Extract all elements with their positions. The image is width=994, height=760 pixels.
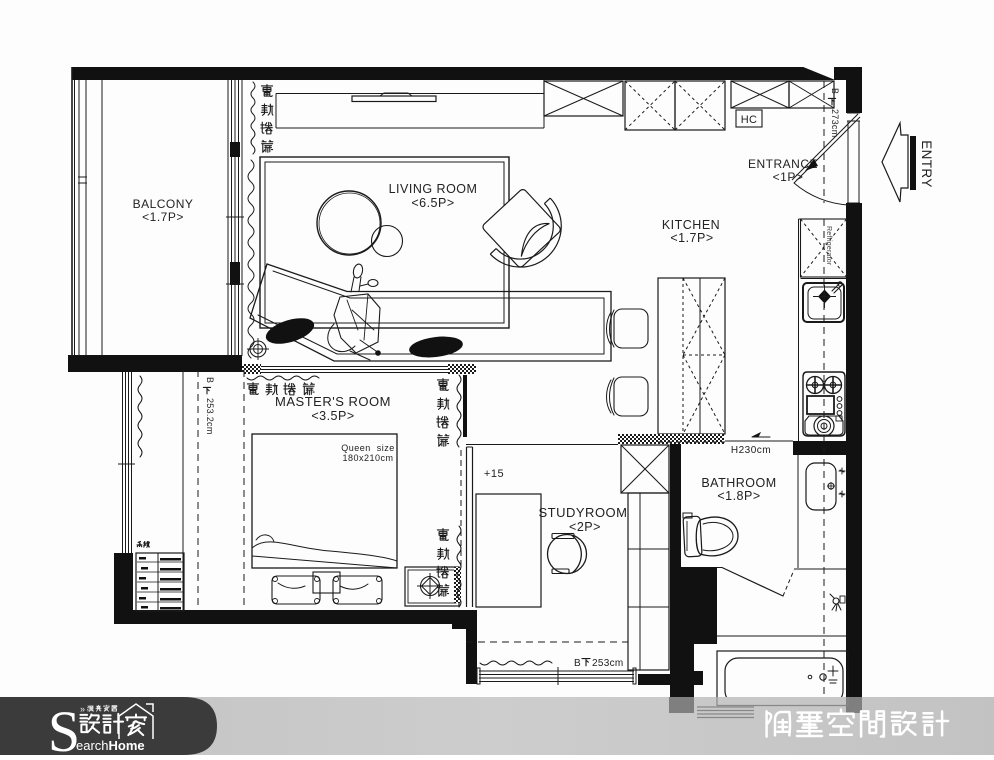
svg-text:KITCHEN: KITCHEN: [662, 218, 720, 232]
svg-text:BATHROOM: BATHROOM: [701, 476, 776, 490]
svg-text:253.2cm: 253.2cm: [205, 398, 215, 435]
svg-text:BALCONY: BALCONY: [133, 197, 194, 211]
svg-text:H230cm: H230cm: [731, 445, 771, 456]
svg-text:earchHome: earchHome: [76, 738, 145, 753]
svg-text:180x210cm: 180x210cm: [342, 453, 393, 463]
svg-text:<1.7P>: <1.7P>: [670, 231, 713, 245]
svg-text:B: B: [574, 658, 581, 669]
svg-text:<6.5P>: <6.5P>: [411, 196, 454, 210]
svg-text:+15: +15: [484, 468, 504, 480]
svg-text:ENTRY: ENTRY: [919, 140, 934, 188]
svg-text:HC: HC: [741, 114, 758, 126]
svg-text:MASTER'S ROOM: MASTER'S ROOM: [275, 394, 391, 409]
svg-text:B: B: [830, 88, 840, 94]
svg-text:»: »: [80, 704, 86, 714]
svg-text:Queen size: Queen size: [341, 443, 395, 453]
svg-text:<3.5P>: <3.5P>: [311, 409, 354, 423]
svg-text:<2P>: <2P>: [569, 520, 601, 534]
svg-text:B: B: [205, 377, 215, 383]
svg-text:253cm: 253cm: [592, 658, 624, 669]
svg-text:LIVING ROOM: LIVING ROOM: [389, 182, 478, 196]
svg-text:<1.7P>: <1.7P>: [142, 210, 184, 224]
svg-text:<1P>: <1P>: [773, 170, 804, 184]
svg-text:Refrigerator: Refrigerator: [825, 226, 832, 266]
svg-text:<1.8P>: <1.8P>: [717, 489, 760, 503]
svg-text:STUDYROOM: STUDYROOM: [539, 505, 628, 520]
